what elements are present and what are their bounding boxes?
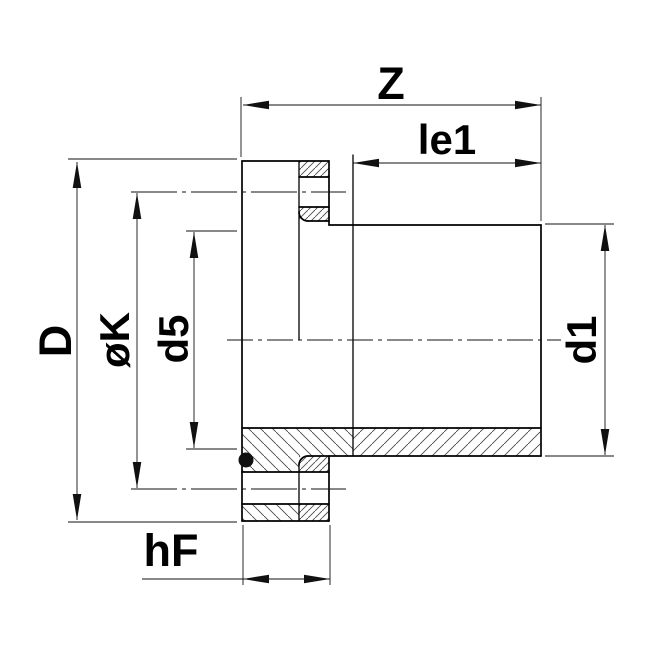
arrow-hf-left (243, 575, 269, 584)
dim-label-d: D (30, 325, 81, 358)
dim-label-z: Z (377, 58, 405, 109)
arrow-ok-top (133, 193, 142, 219)
arrow-d1-top (601, 225, 610, 251)
hatch-stub-flange-bottom (242, 504, 299, 521)
arrow-d5-top (190, 232, 199, 258)
arrow-z-left (243, 101, 269, 110)
arrow-le1-right (515, 159, 541, 168)
hatch-ring-bottom-outer (299, 504, 329, 521)
hatch-stub-wall (242, 428, 353, 456)
arrow-le1-left (353, 159, 379, 168)
dim-label-d5: d5 (150, 314, 197, 363)
dimension-labels: Z le1 D øK d5 d1 hF (30, 58, 605, 576)
dim-label-le1: le1 (418, 116, 476, 163)
arrow-hf-right (304, 575, 330, 584)
hatch-ring-bottom-inner (299, 456, 329, 472)
technical-drawing: Z le1 D øK d5 d1 hF (0, 0, 650, 650)
arrow-d-top (73, 162, 82, 188)
hatch-pipe-wall (353, 428, 541, 456)
arrow-z-right (515, 101, 541, 110)
dim-label-hf: hF (144, 525, 199, 576)
hatch-ring-top-outer (299, 161, 329, 177)
section-hatching (242, 161, 541, 521)
drawing-canvas: Z le1 D øK d5 d1 hF (0, 0, 650, 650)
dim-label-d1: d1 (558, 315, 605, 364)
o-ring-seal (239, 453, 254, 468)
arrow-d1-bottom (601, 429, 610, 455)
arrow-ok-bottom (133, 462, 142, 488)
dim-label-ok: øK (91, 312, 138, 368)
arrow-d5-bottom (190, 422, 199, 448)
arrow-d-bottom (73, 494, 82, 520)
